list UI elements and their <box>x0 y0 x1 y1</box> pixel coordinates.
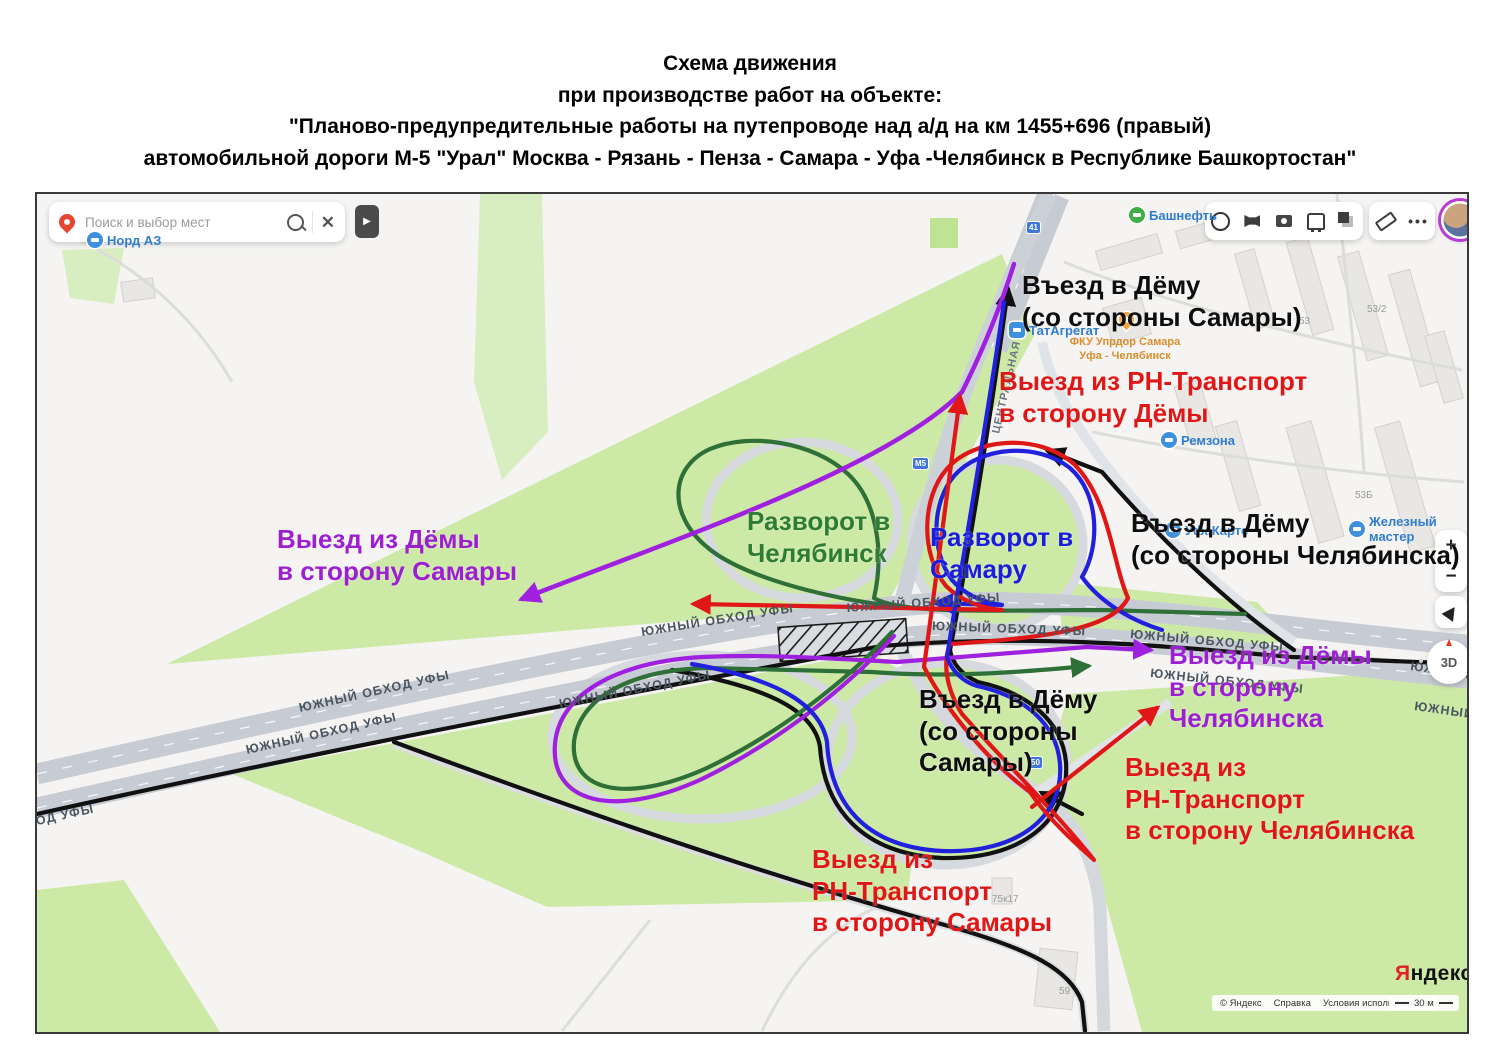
annotation-exit-dema-to-chelyabinsk: Выезд из Дёмыв сторонуЧелябинска <box>1169 640 1372 735</box>
panoramas-icon[interactable] <box>1242 211 1262 231</box>
compass-3d-button[interactable]: 3D <box>1427 640 1469 684</box>
title-line-1: Схема движения <box>0 48 1500 80</box>
annotation-uturn-chelyabinsk: Разворот вЧелябинск <box>747 506 890 569</box>
car-service-icon <box>1161 432 1177 448</box>
play-icon: ▶ <box>363 216 371 227</box>
photos-icon[interactable] <box>1274 211 1294 231</box>
gas-station-icon <box>1129 207 1145 223</box>
title-line-4: автомобильной дороги М-5 "Урал" Москва -… <box>0 143 1500 175</box>
annotation-exit-rn-to-dema: Выезд из РН-Транспортв сторону Дёмы <box>999 366 1307 429</box>
title-line-2: при производстве работ на объекте: <box>0 80 1500 112</box>
building-number: 53/2 <box>1367 304 1386 315</box>
building-number: 53Б <box>1355 490 1373 501</box>
annotation-entry-dema-from-chelyabinsk: Въезд в Дёму(со стороны Челябинска) <box>1131 508 1460 571</box>
poi-fku-uprdor[interactable]: ФКУ Упрдор Самара Уфа - Челябинск <box>1059 336 1191 364</box>
road-badge: М5 <box>913 458 928 469</box>
ruler-icon[interactable] <box>1376 211 1396 231</box>
poi-nord-az[interactable]: Норд АЗ <box>87 232 161 248</box>
title-line-3: "Планово-предупредительные работы на пут… <box>0 111 1500 143</box>
annotation-entry-dema-from-samara-center: Въезд в Дёму(со стороныСамары) <box>919 684 1097 779</box>
annotation-exit-dema-to-samara: Выезд из Дёмыв сторону Самары <box>277 524 517 587</box>
building-number: 59 <box>1059 986 1070 997</box>
map-canvas[interactable]: ЮЖНЫЙ ОБХОД УФЫ ЮЖНЫЙ ОБХОД УФЫ ЮЖНЫЙ ОБ… <box>35 192 1469 1034</box>
search-input[interactable] <box>83 214 279 231</box>
map-toolbar <box>1205 202 1363 240</box>
yandex-logo[interactable]: Яндекс <box>1395 962 1469 986</box>
panel-expand-button[interactable]: ▶ <box>355 205 379 238</box>
gas-station-icon <box>87 232 103 248</box>
poi-bashneft[interactable]: Башнефть <box>1129 207 1217 223</box>
scale-bar: 30 м <box>1389 995 1459 1011</box>
search-icon[interactable] <box>287 214 304 231</box>
annotation-exit-rn-to-samara: Выезд изРН-Транспортв сторону Самары <box>812 844 1052 939</box>
road-badge: 41 <box>1027 222 1040 233</box>
divider <box>312 211 313 233</box>
more-icon[interactable]: ••• <box>1409 211 1429 231</box>
location-arrow-icon <box>1442 603 1461 622</box>
annotation-entry-dema-from-samara-top: Въезд в Дёму(со стороны Самары) <box>1022 270 1302 333</box>
scheme-title: Схема движения при производстве работ на… <box>0 48 1500 174</box>
tools-toolbar: ••• <box>1369 202 1435 240</box>
transport-icon[interactable] <box>1306 211 1326 231</box>
layers-icon[interactable] <box>1337 211 1357 231</box>
annotation-uturn-samara: Разворот вСамару <box>930 522 1073 585</box>
poi-remzona[interactable]: Ремзона <box>1161 432 1235 448</box>
help-link[interactable]: Справка <box>1274 998 1311 1009</box>
map-pin-icon <box>56 211 79 234</box>
copyright-text: © Яндекс <box>1220 998 1262 1009</box>
annotation-exit-rn-to-chelyabinsk: Выезд изРН-Транспортв сторону Челябинска <box>1125 752 1414 847</box>
my-location-button[interactable] <box>1435 596 1467 628</box>
close-icon[interactable]: ✕ <box>321 214 335 231</box>
